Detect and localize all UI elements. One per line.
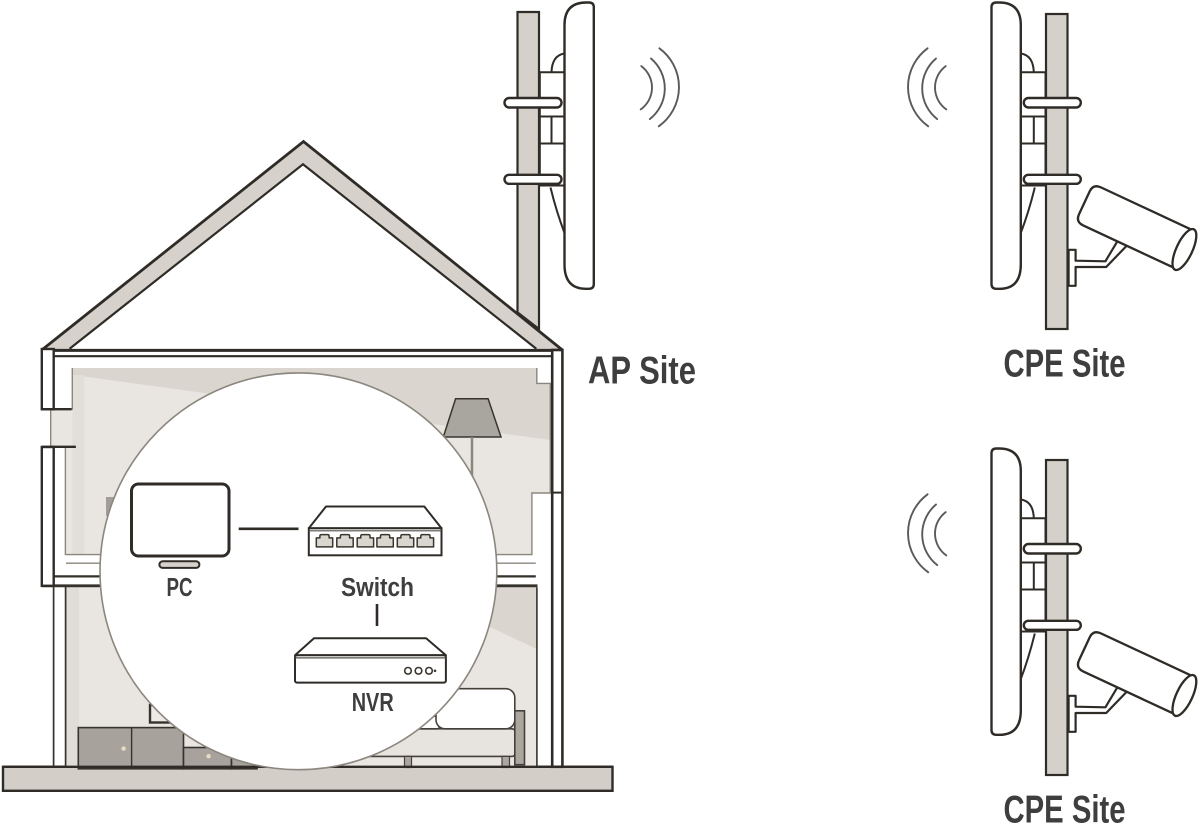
svg-text:AP Site: AP Site (588, 350, 696, 393)
svg-text:CPE Site: CPE Site (1004, 343, 1126, 386)
svg-text:PC: PC (167, 574, 193, 602)
svg-text:NVR: NVR (352, 689, 394, 717)
svg-text:CPE Site: CPE Site (1004, 789, 1126, 831)
svg-text:Switch: Switch (341, 574, 414, 602)
